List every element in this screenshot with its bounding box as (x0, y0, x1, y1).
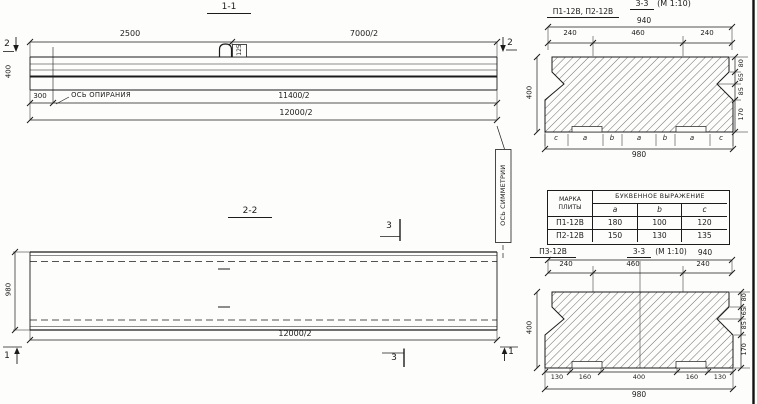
lifting-loop (220, 44, 232, 57)
cs1-dim-240b: 240 (692, 30, 722, 37)
cs1-dim-240a: 240 (555, 30, 585, 37)
cut-label-2-left: 2 (2, 40, 12, 49)
table-header-marka: МАРКА ПЛИТЫ (548, 191, 593, 217)
table-row-mark: П2-12В (548, 230, 593, 243)
dim-11400-2: 11400/2 (266, 92, 322, 100)
cs1-letter-c1: c (548, 135, 564, 142)
table-col-b: b (638, 204, 682, 217)
cs1-letter-b1: b (604, 135, 620, 142)
cross-section-p3 (534, 257, 750, 392)
cs1-letter-a2: a (631, 135, 647, 142)
cs1-dim-940: 940 (629, 17, 659, 25)
dim-12000-2: 12000/2 (268, 109, 324, 117)
cs3-dim-130a: 130 (544, 374, 570, 381)
cs3-dim-160a: 160 (572, 374, 598, 381)
dim-300: 300 (27, 93, 53, 100)
table-cell: 150 (593, 230, 638, 243)
cs3-dim-460: 460 (618, 261, 648, 268)
cs3-dim-240a: 240 (551, 261, 581, 268)
table-cell: 180 (593, 217, 638, 230)
cs3-dim-980: 980 (624, 391, 654, 399)
table-col-a: a (593, 204, 638, 217)
section-2-2-title: 2-2 (228, 207, 272, 218)
cut-label-3-top: 3 (383, 222, 395, 231)
cs1-letter-a1: a (577, 135, 593, 142)
cs3-dim-85: 85 (741, 316, 748, 334)
table-cell: 135 (682, 230, 727, 243)
table-col-c: c (682, 204, 727, 217)
cs3-dim-160b: 160 (679, 374, 705, 381)
bottom-groove (572, 127, 602, 133)
cs1-letter-c2: c (713, 135, 729, 142)
cs3-dim-170: 170 (741, 338, 748, 360)
cs3-dim-400b: 400 (626, 374, 652, 381)
cs3-dim-400: 400 (526, 315, 533, 341)
cs1-dim-170: 170 (738, 103, 745, 125)
dim-400-height: 400 (6, 59, 13, 85)
cs3-mark-label: П3-12В (530, 248, 576, 258)
support-axis-label: ОСЬ ОПИРАНИЯ (68, 92, 134, 99)
cut-label-2-right: 2 (505, 39, 515, 48)
cs3-title: 3-3 (627, 248, 651, 258)
cs1-dim-85: 85 (738, 82, 745, 100)
section-1-1-title: 1-1 (207, 3, 251, 14)
center-marks (218, 269, 230, 307)
dim-12000-2-plan: 12000/2 (267, 330, 323, 338)
loop-tag-label: 125 (237, 43, 243, 57)
dim-lines-1-1 (30, 42, 497, 120)
cs1-mark-label: П1-12В, П2-12В (547, 8, 619, 18)
cs3-dim-240b: 240 (688, 261, 718, 268)
cut-label-3-bottom: 3 (388, 354, 400, 363)
cs1-dim-400: 400 (526, 80, 533, 106)
cut-label-1-right: 1 (506, 348, 516, 357)
cs3-dim-130b: 130 (707, 374, 733, 381)
symmetry-axis-label: ОСЬ СИММЕТРИИ (500, 151, 507, 239)
hatched-section-body (545, 57, 733, 132)
cs1-letter-b2: b (657, 135, 673, 142)
bottom-groove (676, 362, 706, 369)
bottom-groove (572, 362, 602, 369)
table-header-expression: БУКВЕННОЕ ВЫРАЖЕНИЕ (593, 191, 727, 204)
table-cell: 100 (638, 217, 682, 230)
plate-parameters-table: МАРКА ПЛИТЫ БУКВЕННОЕ ВЫРАЖЕНИЕ a b c П1… (547, 190, 730, 245)
table-cell: 130 (638, 230, 682, 243)
drawing-sheet: 1-1 2500 7000/2 400 300 ОСЬ ОПИРАНИЯ 114… (0, 0, 757, 404)
table-row-mark: П1-12В (548, 217, 593, 230)
dim-2500: 2500 (103, 30, 157, 38)
dim-980-width: 980 (5, 277, 12, 303)
cs1-dim-980: 980 (624, 151, 654, 159)
dim-7000-2: 7000/2 (337, 30, 391, 38)
table-cell: 120 (682, 217, 727, 230)
cs1-scale: (М 1:10) (654, 0, 694, 8)
dim-ticks-1-1 (27, 39, 500, 123)
cross-section-p1-p2 (534, 24, 748, 152)
cs3-dim-940: 940 (690, 249, 720, 257)
section-2-2-view (3, 150, 518, 368)
bottom-groove (676, 127, 706, 133)
symmetry-leader (497, 126, 505, 149)
cs1-dim-460: 460 (623, 30, 653, 37)
hatched-section-body (545, 292, 733, 368)
cut-label-1-left: 1 (2, 352, 12, 361)
cs1-title: 3-3 (630, 0, 654, 10)
cs3-scale: (М 1:10) (651, 248, 691, 256)
cs1-letter-a3: a (684, 135, 700, 142)
